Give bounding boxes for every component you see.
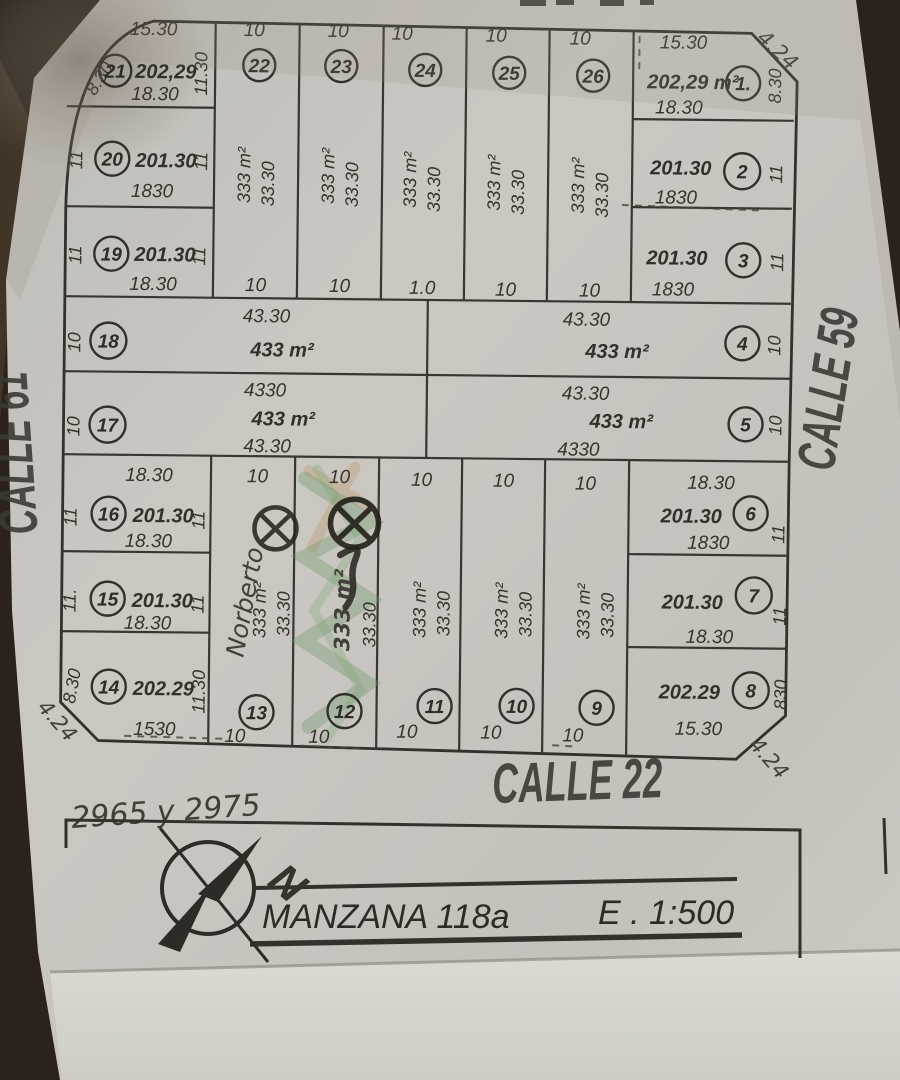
photo-of-cadastral-plan: { "streets": { "left": "CALLE 61", "righ… — [0, 0, 900, 1080]
photo-vignette — [0, 0, 900, 1080]
plan-photo-canvas: 15.30 8.30 21 202,29 11.30 18.30 11 20 2… — [0, 0, 900, 1080]
